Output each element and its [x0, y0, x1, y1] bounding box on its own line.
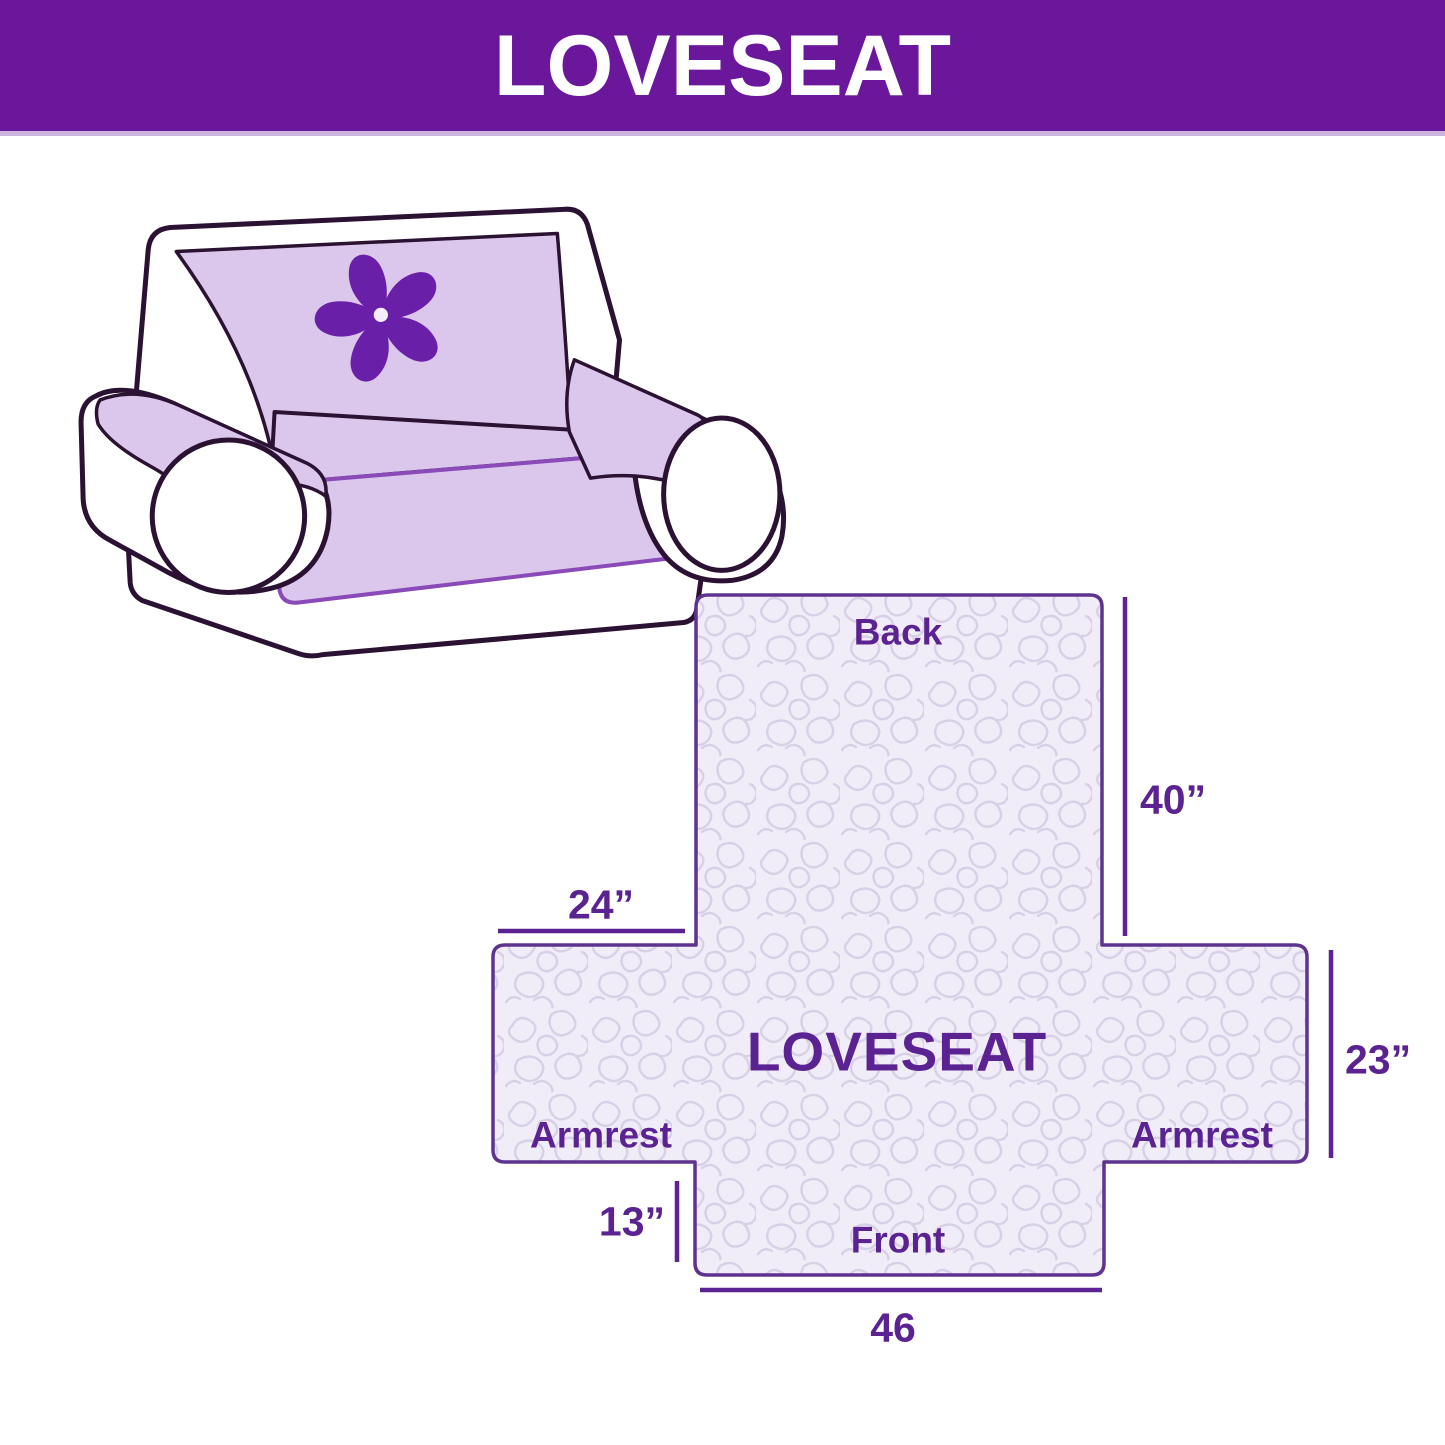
dim-back-height: 40” — [1140, 780, 1206, 821]
loveseat-product-image: LOVESEAT — [0, 0, 1445, 1445]
dim-front-width: 46 — [870, 1308, 916, 1349]
dim-back-top-width: 24” — [568, 885, 634, 926]
dim-front-drop: 13” — [599, 1202, 665, 1243]
cover-diagram — [0, 0, 1445, 1445]
diagram-armrest-right-label: Armrest — [1131, 1117, 1273, 1154]
diagram-armrest-left-label: Armrest — [530, 1117, 672, 1154]
diagram-back-label: Back — [854, 614, 942, 651]
diagram-center-label: LOVESEAT — [747, 1025, 1047, 1080]
diagram-front-label: Front — [851, 1222, 946, 1259]
dim-armrest-height: 23” — [1345, 1040, 1411, 1081]
cover-outline-shape — [493, 595, 1307, 1275]
